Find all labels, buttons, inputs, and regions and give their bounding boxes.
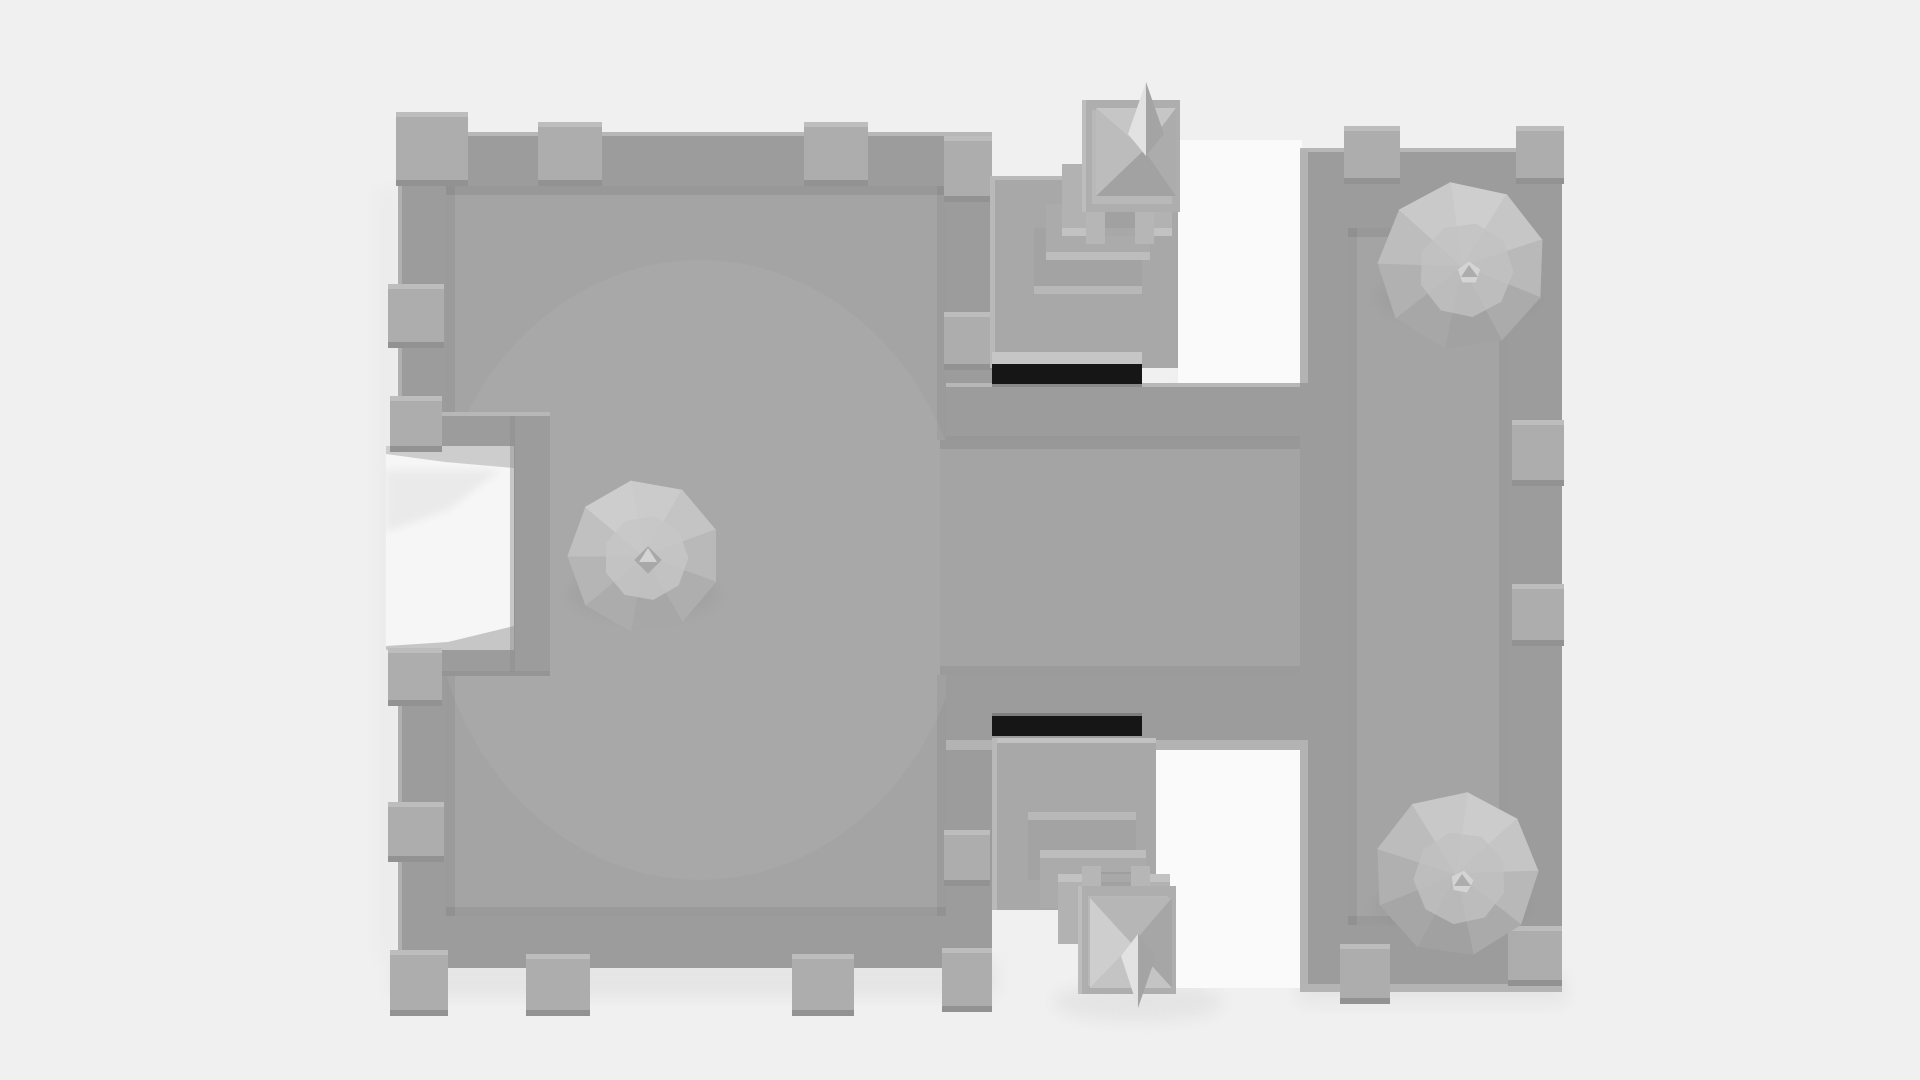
bridge-hall xyxy=(940,383,1348,750)
castle-render xyxy=(0,0,1920,1080)
render-viewport xyxy=(0,0,1920,1080)
